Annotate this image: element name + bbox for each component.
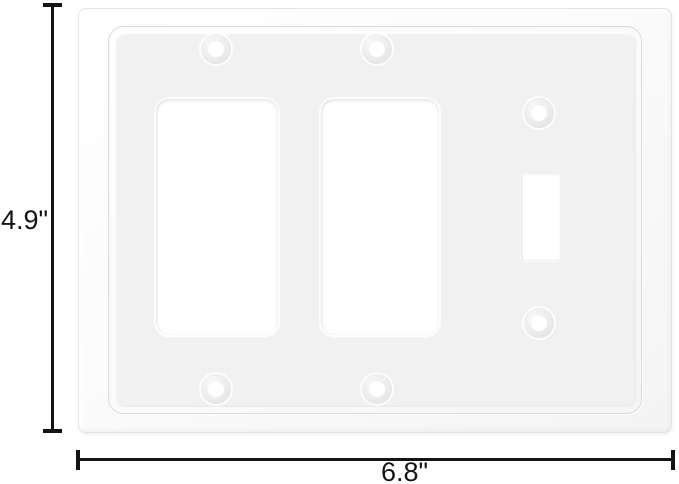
screw-hole bbox=[524, 98, 554, 128]
product-image-canvas: 4.9" 6.8" bbox=[0, 0, 679, 484]
width-dimension-line bbox=[78, 458, 674, 461]
wall-plate bbox=[78, 8, 672, 433]
screw-hole bbox=[362, 34, 392, 64]
toggle-cutout bbox=[521, 175, 559, 261]
rocker-cutout-middle bbox=[321, 99, 439, 335]
screw-hole bbox=[201, 374, 231, 404]
screw-hole bbox=[201, 34, 231, 64]
height-dimension-line bbox=[51, 5, 54, 431]
width-dimension-cap-right bbox=[671, 450, 675, 470]
height-dimension-cap-bottom bbox=[43, 429, 62, 433]
screw-hole bbox=[524, 308, 554, 338]
rocker-cutout-left bbox=[156, 99, 278, 335]
height-dimension-label: 4.9" bbox=[1, 207, 48, 234]
screw-hole bbox=[362, 374, 392, 404]
width-dimension-label: 6.8" bbox=[381, 459, 428, 484]
